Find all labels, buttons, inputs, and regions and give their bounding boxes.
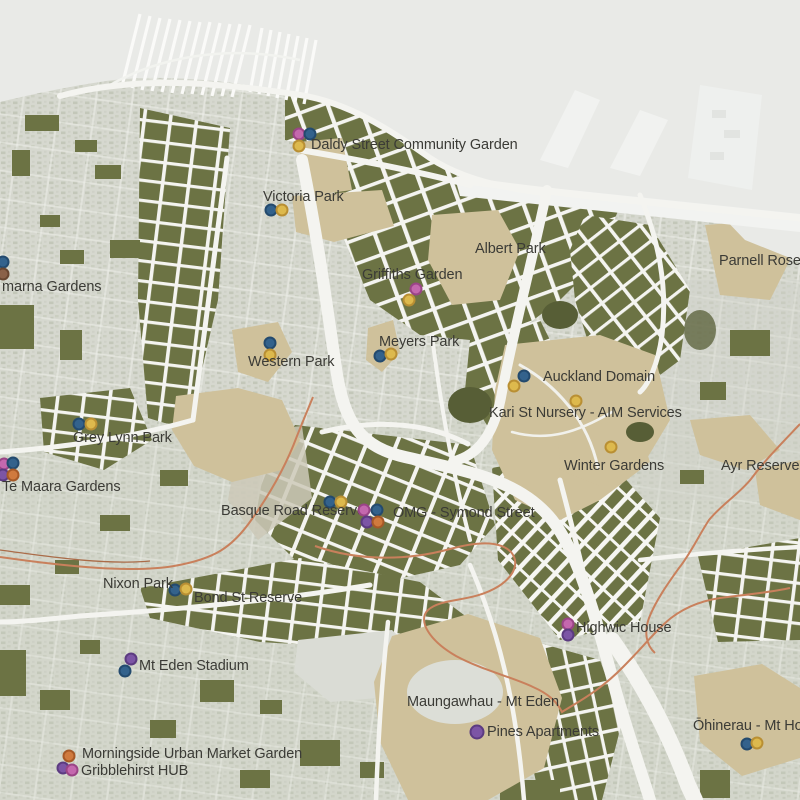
marker-dot-pink bbox=[358, 504, 371, 517]
map-label-maungawhau-mt-eden: Maungawhau - Mt Eden bbox=[407, 695, 559, 711]
map-label-gribblehirst-hub: Gribblehirst HUB bbox=[81, 764, 188, 780]
map-label-morningside-urban-market-garden: Morningside Urban Market Garden bbox=[82, 747, 302, 763]
map-label-parnell-rose-gardens: Parnell Rose Gardens bbox=[719, 254, 800, 270]
marker-dot-pink bbox=[66, 764, 79, 777]
map-label-albert-park: Albert Park bbox=[475, 242, 546, 258]
map-label-ohinerau-mt-hobson: Ōhinerau - Mt Hobson bbox=[693, 719, 800, 735]
marker-dot-orange bbox=[372, 516, 385, 529]
marker-dot-purple bbox=[125, 653, 138, 666]
marker-dot-yellow bbox=[605, 441, 618, 454]
map-label-omg-symond-street: OMG - Symond Street bbox=[393, 506, 535, 522]
map-label-te-maara-gardens: Te Maara Gardens bbox=[2, 480, 121, 496]
map-label-western-park: Western Park bbox=[248, 355, 334, 371]
map-label-grey-lynn-park: Grey Lynn Park bbox=[73, 431, 172, 447]
marker-dot-yellow bbox=[508, 380, 521, 393]
map-label-bond-st-reserve: Bond St Reserve bbox=[194, 591, 302, 607]
map-label-griffiths-garden: Griffiths Garden bbox=[362, 268, 462, 284]
map-canvas[interactable]: Daldy Street Community GardenVictoria Pa… bbox=[0, 0, 800, 800]
marker-dot-yellow bbox=[293, 140, 306, 153]
map-label-victoria-park: Victoria Park bbox=[263, 190, 344, 206]
map-label-ayr-reserve: Ayr Reserve bbox=[721, 459, 799, 475]
map-label-basque-road-reserve: Basque Road Reserve bbox=[221, 504, 365, 520]
marker-dot-purple bbox=[470, 725, 485, 740]
map-label-nixon-park: Nixon Park bbox=[103, 577, 173, 593]
map-label-pines-apartments: Pines Apartments bbox=[487, 725, 599, 741]
marker-dot-orange bbox=[63, 750, 76, 763]
marker-dot-blue bbox=[518, 370, 531, 383]
marker-dot-yellow bbox=[85, 418, 98, 431]
map-label-winter-gardens: Winter Gardens bbox=[564, 459, 664, 475]
map-label-meyers-park: Meyers Park bbox=[379, 335, 459, 351]
map-label-daldy-street-community-garden: Daldy Street Community Garden bbox=[311, 138, 518, 154]
map-label-kelmarna-gardens: marna Gardens bbox=[2, 280, 101, 296]
map-label-kari-st-nursery-aim-services: Kari St Nursery - AIM Services bbox=[489, 406, 682, 422]
map-label-auckland-domain: Auckland Domain bbox=[543, 370, 655, 386]
marker-dot-purple bbox=[562, 629, 575, 642]
map-overlay: Daldy Street Community GardenVictoria Pa… bbox=[0, 0, 800, 800]
marker-dot-yellow bbox=[403, 294, 416, 307]
marker-dot-blue bbox=[119, 665, 132, 678]
marker-dot-yellow bbox=[180, 583, 193, 596]
map-label-highwic-house: Highwic House bbox=[576, 621, 671, 637]
marker-dot-yellow bbox=[751, 737, 764, 750]
map-label-mt-eden-stadium: Mt Eden Stadium bbox=[139, 659, 249, 675]
